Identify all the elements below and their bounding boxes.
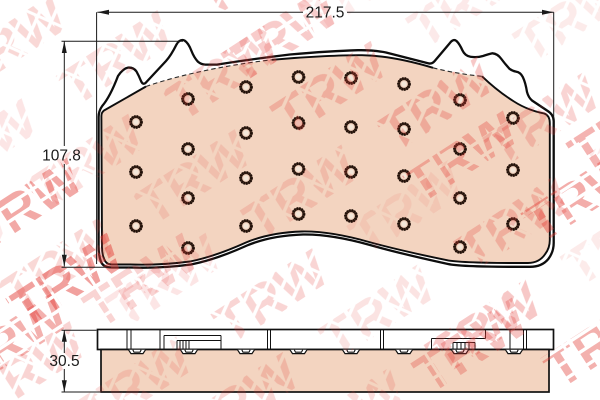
svg-text:217.5: 217.5 <box>306 5 345 22</box>
svg-text:107.8: 107.8 <box>42 148 81 165</box>
svg-text:30.5: 30.5 <box>49 353 79 370</box>
